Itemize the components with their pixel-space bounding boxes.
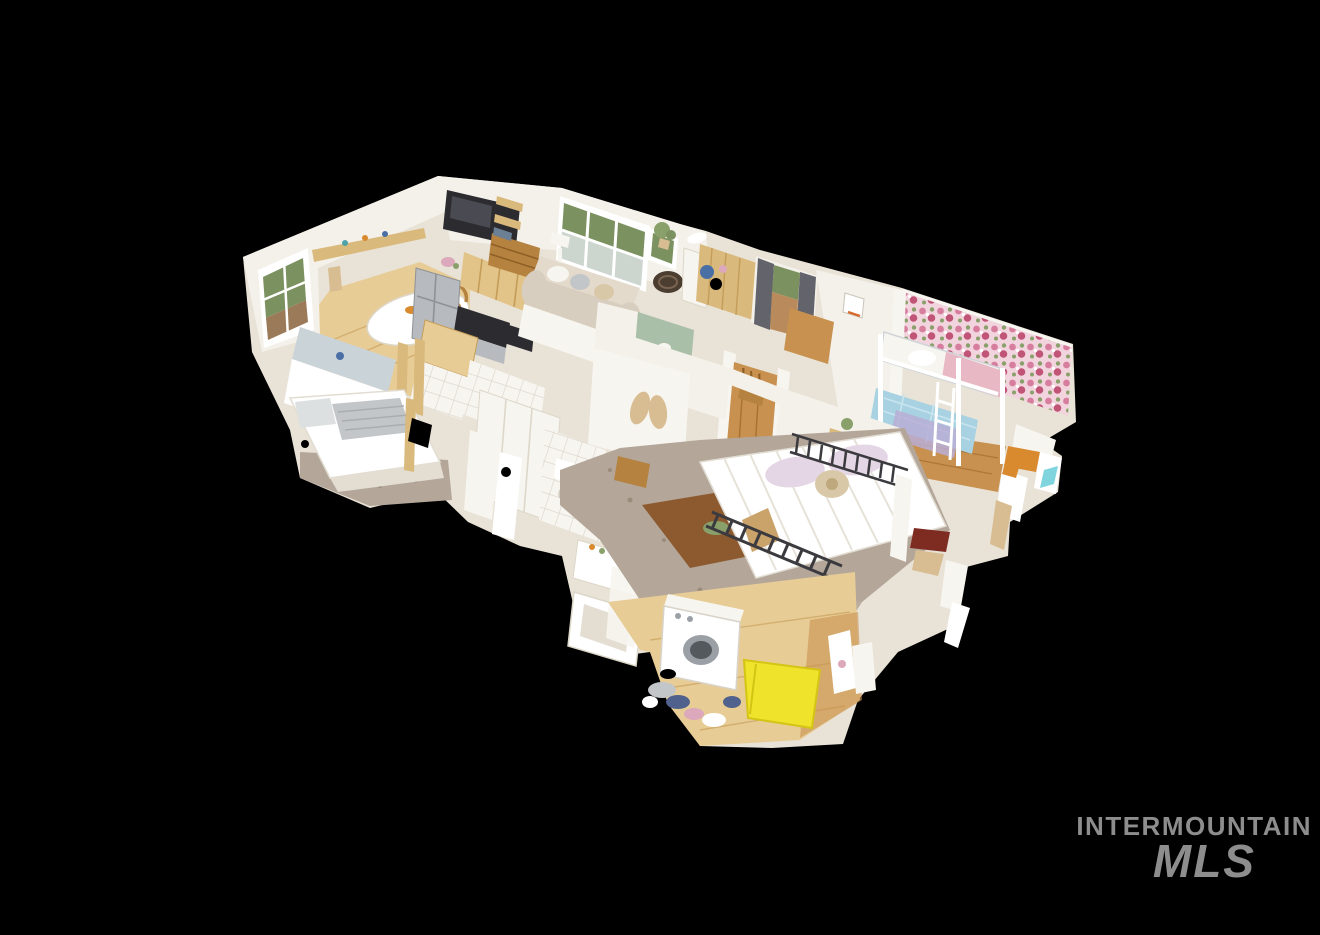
sink-bottle <box>336 352 344 360</box>
laundry-clothes <box>648 682 676 698</box>
pillow-bead-detail <box>826 478 838 490</box>
potted-plant <box>666 230 676 240</box>
bunk-white-pillow <box>908 350 936 366</box>
shelf-bottle <box>362 235 368 241</box>
dollhouse-3d-view <box>0 0 1320 935</box>
flower-vase <box>441 257 455 267</box>
washer-knob <box>687 616 693 622</box>
coat-pink <box>719 265 727 273</box>
throw-pillow <box>594 284 614 300</box>
maroon-patch <box>910 528 950 552</box>
laundry-clothes <box>723 696 741 708</box>
bunk-post <box>1000 368 1005 464</box>
laundry-clothes <box>684 708 704 720</box>
shelf-bottle <box>382 231 388 237</box>
carpet-speckle <box>608 468 612 472</box>
laundry-clothes <box>666 695 690 709</box>
flower-leaf <box>453 263 459 269</box>
throw-pillow <box>547 266 569 282</box>
hanging-decor <box>328 266 342 292</box>
laundry-clothes <box>660 669 676 679</box>
bunk-post <box>956 358 961 466</box>
carpet-speckle <box>628 498 633 503</box>
mls-watermark: INTERMOUNTAIN MLS <box>1076 813 1312 885</box>
throw-pillow <box>570 274 590 290</box>
hanging-teal-item <box>501 467 511 477</box>
watermark-mls-text: MLS <box>1076 837 1312 885</box>
laundry-clothes <box>702 713 726 727</box>
jute-hat <box>653 271 683 293</box>
screenshot-canvas: INTERMOUNTAIN MLS <box>0 0 1320 935</box>
teal-accent <box>301 440 309 448</box>
coat-blue <box>700 265 714 279</box>
mesh-figure-shard <box>852 642 876 694</box>
carpet-speckle <box>662 538 666 542</box>
vanity-jar <box>589 544 595 550</box>
washer-door-glass <box>690 641 712 659</box>
vanity-jar <box>599 548 605 554</box>
shard-pink-detail <box>838 660 846 668</box>
laundry-clothes <box>642 696 658 708</box>
left-bed-pillow <box>295 398 336 428</box>
coat-teal <box>710 278 722 290</box>
washer-knob <box>675 613 681 619</box>
shelf-bottle <box>342 240 348 246</box>
shelf-plant <box>841 418 853 430</box>
